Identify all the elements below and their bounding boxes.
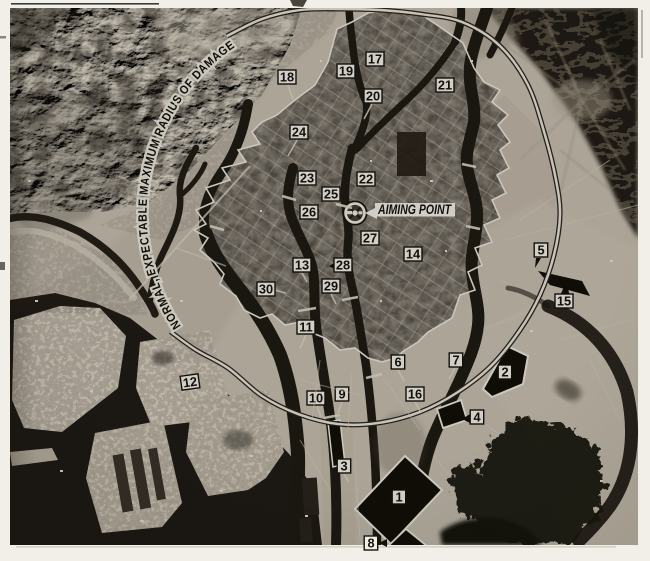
svg-text:8: 8 bbox=[367, 536, 374, 551]
